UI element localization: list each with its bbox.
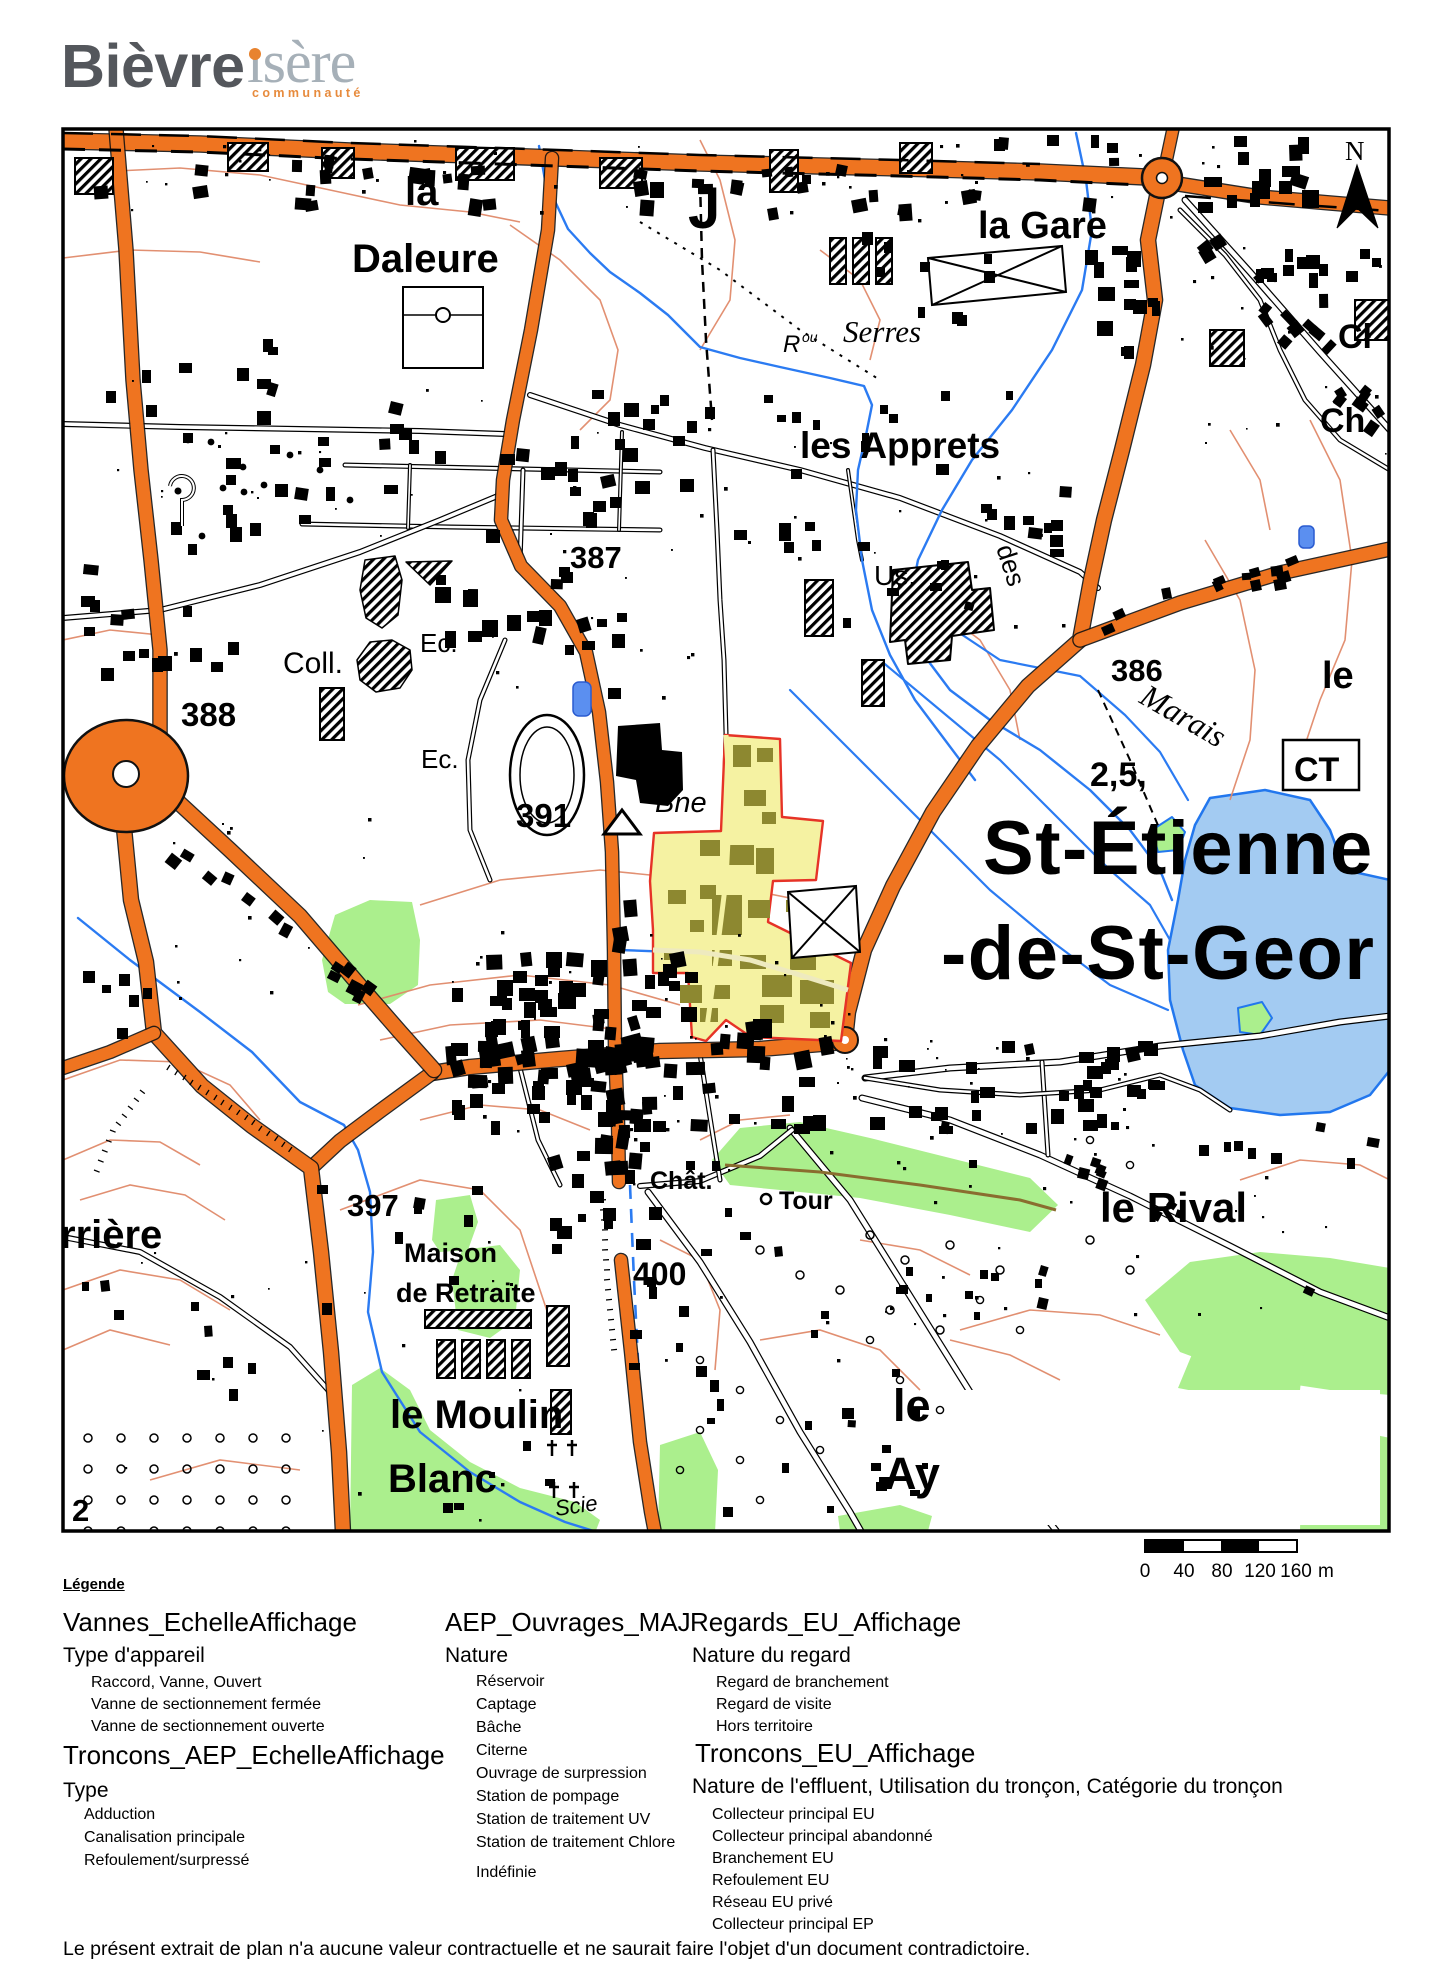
svg-text:le: le: [893, 1380, 931, 1431]
svg-text:la: la: [405, 170, 439, 214]
svg-text:CT: CT: [1294, 751, 1340, 789]
svg-text:Tour: Tour: [779, 1187, 833, 1215]
svg-text:-de-St-Geor: -de-St-Geor: [941, 911, 1376, 996]
svg-text:R: R: [783, 331, 800, 358]
svg-text:Maison: Maison: [404, 1238, 497, 1268]
svg-text:N: N: [1345, 136, 1365, 166]
svg-text:Cl: Cl: [1338, 318, 1372, 356]
svg-text:Ec.: Ec.: [420, 628, 458, 658]
svg-text:2: 2: [72, 1493, 89, 1528]
svg-text:rrière: rrière: [60, 1213, 162, 1257]
svg-text:Ay: Ay: [884, 1448, 940, 1499]
svg-text:391: 391: [516, 797, 571, 834]
svg-text:le Rival: le Rival: [1100, 1184, 1247, 1231]
svg-text:de Retraite: de Retraite: [396, 1278, 536, 1308]
svg-text:Ch: Ch: [1320, 402, 1365, 440]
svg-text:397: 397: [347, 1188, 399, 1223]
svg-text:2,5,: 2,5,: [1090, 756, 1147, 794]
svg-text:Serres: Serres: [843, 314, 921, 349]
svg-text:la Gare: la Gare: [978, 205, 1107, 247]
svg-text:387: 387: [570, 540, 622, 575]
svg-text:Ec.: Ec.: [421, 744, 459, 774]
svg-text:400: 400: [633, 1256, 686, 1292]
svg-text:Chât.: Chât.: [650, 1167, 713, 1195]
svg-text:ou: ou: [802, 329, 818, 345]
svg-text:les Apprets: les Apprets: [800, 425, 1000, 466]
svg-text:le: le: [1322, 655, 1354, 697]
svg-text:le Moulin: le Moulin: [390, 1393, 563, 1437]
svg-text:Coll.: Coll.: [283, 647, 343, 680]
svg-text:J: J: [688, 176, 720, 241]
svg-text:Bne: Bne: [655, 787, 707, 819]
svg-text:St-Étienne: St-Étienne: [983, 806, 1374, 891]
svg-text:388: 388: [181, 696, 236, 733]
svg-text:Daleure: Daleure: [352, 237, 499, 281]
svg-text:Us.: Us.: [874, 560, 916, 591]
svg-text:Blanc: Blanc: [388, 1457, 497, 1501]
